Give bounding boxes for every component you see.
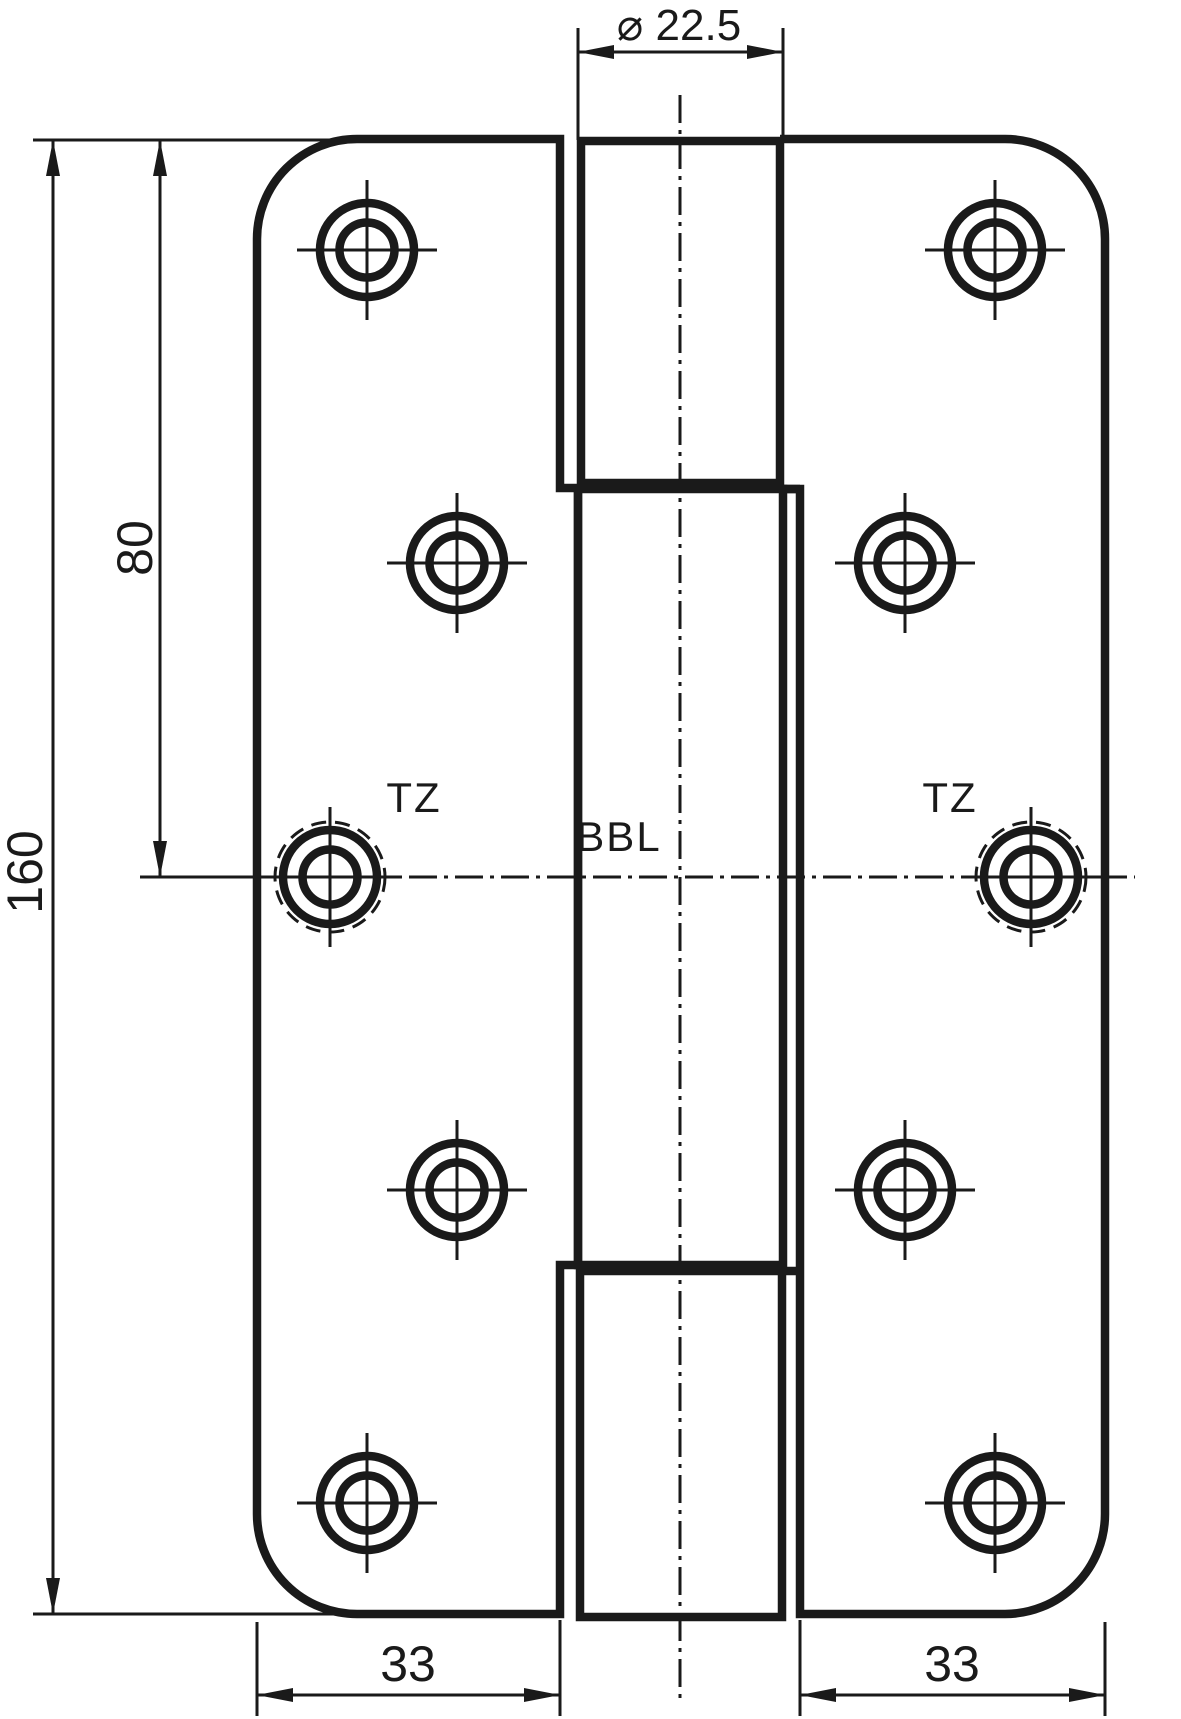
dim33L-arrow-left [257, 1688, 293, 1702]
screw-hole [297, 180, 437, 320]
dim33R-arrow-left [800, 1688, 836, 1702]
screw-hole [925, 1433, 1065, 1573]
dim33R-arrow-right [1069, 1688, 1105, 1702]
width-33-left-dimension-label: 33 [380, 1636, 436, 1692]
diameter-dimension-label: ⌀ 22.5 [617, 1, 741, 50]
screw-hole-with-clearance [961, 807, 1101, 947]
screw-hole [387, 493, 527, 633]
dim160-arrow-top [46, 140, 60, 176]
screw-hole [835, 493, 975, 633]
dim80-arrow-top [153, 140, 167, 176]
dimension-lines [33, 28, 1105, 1716]
dim33L-arrow-right [524, 1688, 560, 1702]
screw-hole [297, 1433, 437, 1573]
dia-arrow-right [747, 45, 783, 59]
screw-hole [925, 180, 1065, 320]
width-33-right-dimension-label: 33 [924, 1636, 980, 1692]
screw-hole [835, 1120, 975, 1260]
screw-hole-with-clearance [260, 807, 400, 947]
drawing-canvas: ⌀ 22.5 160 80 33 33 TZ TZ BBL [0, 0, 1181, 1719]
hinge-technical-drawing: ⌀ 22.5 160 80 33 33 TZ TZ BBL [0, 0, 1181, 1719]
screw-hole [387, 1120, 527, 1260]
tz-left-label: TZ [386, 774, 441, 821]
height-80-dimension-label: 80 [107, 520, 163, 576]
dia-arrow-left [578, 45, 614, 59]
bbl-label: BBL [576, 813, 661, 860]
dim160-arrow-bottom [46, 1578, 60, 1614]
dim80-arrow-bottom [153, 841, 167, 877]
height-160-dimension-label: 160 [0, 830, 53, 913]
tz-right-label: TZ [922, 774, 977, 821]
